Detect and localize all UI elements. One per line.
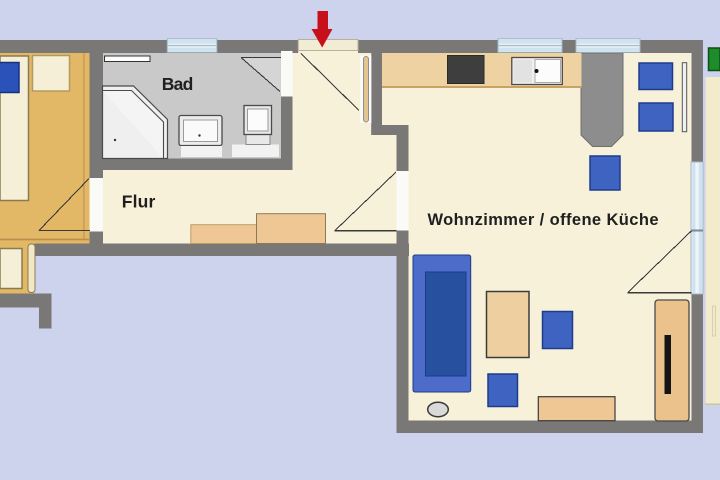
svg-text:Bad: Bad bbox=[162, 74, 194, 94]
svg-text:Wohnzimmer / offene Küche: Wohnzimmer / offene Küche bbox=[428, 211, 659, 229]
svg-text:Flur: Flur bbox=[122, 192, 156, 212]
